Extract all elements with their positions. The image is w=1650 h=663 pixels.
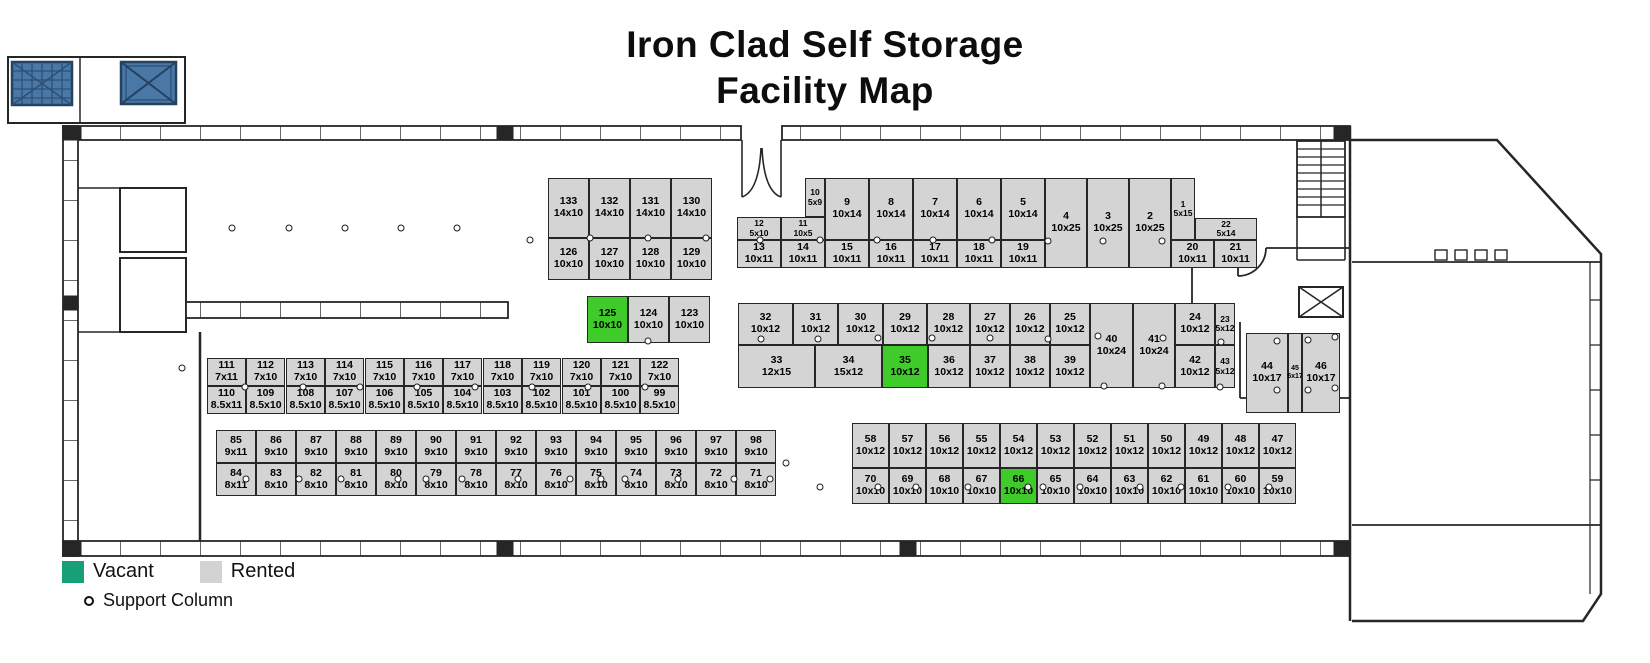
unit-size: 10x11 <box>921 254 950 266</box>
unit-22[interactable]: 225x14 <box>1195 218 1257 240</box>
unit-number: 89 <box>390 435 402 447</box>
unit-size: 5x9 <box>808 198 822 207</box>
unit-size: 5x12 <box>1216 324 1235 333</box>
support-column-dot <box>757 237 764 244</box>
unit-size: 10x11 <box>1178 254 1207 266</box>
unit-46[interactable]: 4610x17 <box>1302 333 1340 413</box>
support-column-dot <box>675 476 682 483</box>
unit-69[interactable]: 6910x10 <box>889 468 926 504</box>
unit-128[interactable]: 12810x10 <box>630 238 671 280</box>
support-column-dot <box>179 365 186 372</box>
unit-size: 8.5x10 <box>604 400 636 412</box>
support-column-dot <box>414 384 421 391</box>
unit-size: 10x25 <box>1093 223 1122 235</box>
unit-55[interactable]: 5510x12 <box>963 423 1000 468</box>
unit-number: 91 <box>470 435 482 447</box>
unit-37[interactable]: 3710x12 <box>970 345 1010 388</box>
unit-115[interactable]: 1157x10 <box>365 358 404 386</box>
unit-20[interactable]: 2010x11 <box>1171 240 1214 268</box>
unit-44[interactable]: 4410x17 <box>1246 333 1288 413</box>
unit-size: 10x10 <box>593 320 622 332</box>
support-column-dot <box>987 335 994 342</box>
support-column-dot <box>1332 334 1339 341</box>
unit-size: 8x10 <box>704 480 727 492</box>
unit-25[interactable]: 2510x12 <box>1050 303 1090 345</box>
unit-size: 8x10 <box>464 480 487 492</box>
unit-52[interactable]: 5210x12 <box>1074 423 1111 468</box>
unit-57[interactable]: 5710x12 <box>889 423 926 468</box>
unit-size: 9x10 <box>664 447 687 459</box>
unit-size: 10x24 <box>1139 346 1168 358</box>
unit-83[interactable]: 838x10 <box>256 463 296 496</box>
unit-number: 123 <box>681 308 699 320</box>
unit-size: 10x10 <box>634 320 663 332</box>
unit-118[interactable]: 1187x10 <box>483 358 522 386</box>
unit-number: 85 <box>230 435 242 447</box>
unit-41[interactable]: 4110x24 <box>1133 303 1175 388</box>
unit-8[interactable]: 810x14 <box>869 178 913 240</box>
support-column-dot <box>357 384 364 391</box>
unit-122[interactable]: 1227x10 <box>640 358 679 386</box>
support-column-dot <box>1332 385 1339 392</box>
unit-number: 47 <box>1272 434 1284 446</box>
vacant-label: Vacant <box>93 560 154 583</box>
unit-6[interactable]: 610x14 <box>957 178 1001 240</box>
interior-partition <box>186 302 508 318</box>
support-column-dot <box>817 484 824 491</box>
unit-size: 10x12 <box>1078 446 1107 458</box>
unit-size: 7x10 <box>254 372 277 384</box>
unit-size: 9x10 <box>744 447 767 459</box>
unit-size: 10x12 <box>1015 324 1044 336</box>
unit-5[interactable]: 510x14 <box>1001 178 1045 240</box>
unit-size: 7x10 <box>294 372 317 384</box>
unit-number: 35 <box>899 355 911 367</box>
unit-109[interactable]: 1098.5x10 <box>246 386 285 414</box>
unit-size: 8.5x10 <box>446 400 478 412</box>
unit-size: 10x12 <box>801 324 830 336</box>
unit-102[interactable]: 1028.5x10 <box>522 386 561 414</box>
support-column-dot <box>1178 484 1185 491</box>
unit-112[interactable]: 1127x10 <box>246 358 285 386</box>
unit-88[interactable]: 889x10 <box>336 430 376 463</box>
unit-size: 10x14 <box>876 209 905 221</box>
unit-size: 9x10 <box>624 447 647 459</box>
unit-43[interactable]: 435x12 <box>1215 345 1235 388</box>
support-column-dot <box>587 235 594 242</box>
unit-number: 36 <box>943 355 955 367</box>
unit-size: 14x10 <box>677 208 706 220</box>
unit-21[interactable]: 2110x11 <box>1214 240 1257 268</box>
unit-size: 10x12 <box>1115 446 1144 458</box>
unit-size: 9x10 <box>384 447 407 459</box>
unit-90[interactable]: 909x10 <box>416 430 456 463</box>
unit-size: 10x17 <box>1252 373 1281 385</box>
unit-size: 10x12 <box>1226 446 1255 458</box>
support-column-dot <box>342 225 349 232</box>
legend: Vacant Rented Support Column <box>62 560 295 611</box>
unit-size: 7x10 <box>609 372 632 384</box>
interior-rooms <box>78 188 186 332</box>
unit-92[interactable]: 929x10 <box>496 430 536 463</box>
unit-size: 10x12 <box>1004 446 1033 458</box>
unit-39[interactable]: 3910x12 <box>1050 345 1090 388</box>
unit-size: 10x17 <box>1306 373 1335 385</box>
unit-size: 10x12 <box>1263 446 1292 458</box>
unit-size: 8.5x10 <box>289 400 321 412</box>
unit-42[interactable]: 4210x12 <box>1175 345 1215 388</box>
support-column-dot <box>515 476 522 483</box>
unit-size: 10x11 <box>1221 254 1250 266</box>
unit-size: 10x14 <box>964 209 993 221</box>
unit-123[interactable]: 12310x10 <box>669 296 710 343</box>
unit-108[interactable]: 1088.5x10 <box>286 386 325 414</box>
support-column-dot <box>703 235 710 242</box>
unit-number: 84 <box>230 468 242 480</box>
unit-132[interactable]: 13214x10 <box>589 178 630 238</box>
support-column-dot <box>1217 384 1224 391</box>
support-column-dot <box>1100 238 1107 245</box>
unit-13[interactable]: 1310x11 <box>737 240 781 268</box>
support-column-dot <box>645 338 652 345</box>
unit-size: 9x10 <box>344 447 367 459</box>
unit-111[interactable]: 1117x11 <box>207 358 246 386</box>
unit-size: 7x10 <box>648 372 671 384</box>
unit-3[interactable]: 310x25 <box>1087 178 1129 268</box>
support-column-dot <box>296 476 303 483</box>
unit-size: 10x10 <box>554 259 583 271</box>
support-column-dot <box>527 237 534 244</box>
unit-34[interactable]: 3415x12 <box>815 345 882 388</box>
unit-70[interactable]: 7010x10 <box>852 468 889 504</box>
support-column-dot <box>1218 339 1225 346</box>
unit-number: 79 <box>430 468 442 480</box>
unit-7[interactable]: 710x14 <box>913 178 957 240</box>
support-column-dot <box>459 476 466 483</box>
unit-size: 9x10 <box>264 447 287 459</box>
unit-87[interactable]: 879x10 <box>296 430 336 463</box>
unit-number: 42 <box>1189 355 1201 367</box>
support-column-dot <box>454 225 461 232</box>
unit-120[interactable]: 1207x10 <box>562 358 601 386</box>
unit-4[interactable]: 410x25 <box>1045 178 1087 268</box>
support-column-dot <box>642 384 649 391</box>
unit-40[interactable]: 4010x24 <box>1090 303 1133 388</box>
unit-size: 8x10 <box>304 480 327 492</box>
unit-93[interactable]: 939x10 <box>536 430 576 463</box>
unit-121[interactable]: 1217x10 <box>601 358 640 386</box>
support-column-dot <box>817 237 824 244</box>
unit-33[interactable]: 3312x15 <box>738 345 815 388</box>
unit-49[interactable]: 4910x12 <box>1185 423 1222 468</box>
support-column-dot <box>875 335 882 342</box>
unit-number: 76 <box>550 468 562 480</box>
unit-size: 8.5x10 <box>407 400 439 412</box>
unit-19[interactable]: 1910x11 <box>1001 240 1045 268</box>
unit-size: 10x12 <box>1041 446 1070 458</box>
unit-number: 83 <box>270 468 282 480</box>
unit-97[interactable]: 979x10 <box>696 430 736 463</box>
unit-100[interactable]: 1008.5x10 <box>601 386 640 414</box>
unit-95[interactable]: 959x10 <box>616 430 656 463</box>
unit-number: 78 <box>470 468 482 480</box>
unit-size: 9x10 <box>584 447 607 459</box>
unit-24[interactable]: 2410x12 <box>1175 303 1215 345</box>
unit-number: 55 <box>976 434 988 446</box>
unit-size: 10x10 <box>675 320 704 332</box>
unit-number: 90 <box>430 435 442 447</box>
support-column-dot <box>242 384 249 391</box>
unit-119[interactable]: 1197x10 <box>522 358 561 386</box>
unit-number: 74 <box>630 468 642 480</box>
unit-size: 10x11 <box>877 254 906 266</box>
unit-size: 10x5 <box>794 229 813 238</box>
support-column-dot <box>423 476 430 483</box>
unit-35[interactable]: 3510x12 <box>882 345 928 388</box>
unit-91[interactable]: 919x10 <box>456 430 496 463</box>
support-column-dot <box>930 237 937 244</box>
unit-103[interactable]: 1038.5x10 <box>483 386 522 414</box>
unit-number: 56 <box>939 434 951 446</box>
unit-size: 7x10 <box>570 372 593 384</box>
support-column-dot <box>300 384 307 391</box>
unit-size: 7x10 <box>373 372 396 384</box>
unit-number: 34 <box>843 355 855 367</box>
unit-number: 41 <box>1148 334 1160 346</box>
unit-9[interactable]: 910x14 <box>825 178 869 240</box>
unit-number: 81 <box>350 468 362 480</box>
unit-117[interactable]: 1177x10 <box>443 358 482 386</box>
unit-size: 9x10 <box>504 447 527 459</box>
unit-61[interactable]: 6110x10 <box>1185 468 1222 504</box>
unit-10[interactable]: 105x9 <box>805 178 825 217</box>
unit-number: 86 <box>270 435 282 447</box>
unit-54[interactable]: 5410x12 <box>1000 423 1037 468</box>
unit-size: 10x14 <box>832 209 861 221</box>
unit-size: 10x12 <box>934 324 963 336</box>
unit-113[interactable]: 1137x10 <box>286 358 325 386</box>
elevator-shaft-icon <box>1299 287 1343 317</box>
unit-86[interactable]: 869x10 <box>256 430 296 463</box>
unit-size: 10x12 <box>890 324 919 336</box>
unit-96[interactable]: 969x10 <box>656 430 696 463</box>
unit-number: 71 <box>750 468 762 480</box>
unit-16[interactable]: 1610x11 <box>869 240 913 268</box>
unit-94[interactable]: 949x10 <box>576 430 616 463</box>
unit-size: 14x10 <box>554 208 583 220</box>
unit-50[interactable]: 5010x12 <box>1148 423 1185 468</box>
support-column-dot <box>783 460 790 467</box>
unit-size: 8x10 <box>624 480 647 492</box>
unit-size: 8.5x10 <box>565 400 597 412</box>
unit-15[interactable]: 1510x11 <box>825 240 869 268</box>
unit-number: 93 <box>550 435 562 447</box>
unit-size: 5x17 <box>1287 373 1303 381</box>
support-column-icon <box>84 596 94 606</box>
unit-105[interactable]: 1058.5x10 <box>404 386 443 414</box>
unit-number: 33 <box>771 355 783 367</box>
unit-size: 10x11 <box>965 254 994 266</box>
support-column-dot <box>622 476 629 483</box>
support-column-dot <box>1159 383 1166 390</box>
unit-85[interactable]: 859x11 <box>216 430 256 463</box>
unit-51[interactable]: 5110x12 <box>1111 423 1148 468</box>
unit-size: 10x12 <box>751 324 780 336</box>
support-column-dot <box>815 336 822 343</box>
unit-number: 82 <box>310 468 322 480</box>
support-column-dot <box>398 225 405 232</box>
unit-68[interactable]: 6810x10 <box>926 468 963 504</box>
unit-size: 8.5x10 <box>328 400 360 412</box>
unit-size: 10x12 <box>1189 446 1218 458</box>
unit-size: 10x10 <box>677 259 706 271</box>
unit-number: 124 <box>640 308 658 320</box>
unit-size: 10x10 <box>595 259 624 271</box>
unit-129[interactable]: 12910x10 <box>671 238 712 280</box>
unit-size: 10x12 <box>975 367 1004 379</box>
title-line1: Iron Clad Self Storage <box>0 22 1650 68</box>
unit-size: 10x11 <box>789 254 818 266</box>
unit-size: 10x12 <box>1055 324 1084 336</box>
unit-size: 14x10 <box>595 208 624 220</box>
unit-114[interactable]: 1147x10 <box>325 358 364 386</box>
support-column-dot <box>1101 383 1108 390</box>
support-column-dot <box>229 225 236 232</box>
unit-131[interactable]: 13114x10 <box>630 178 671 238</box>
unit-size: 7x10 <box>451 372 474 384</box>
unit-133[interactable]: 13314x10 <box>548 178 589 238</box>
unit-32[interactable]: 3210x12 <box>738 303 793 345</box>
unit-124[interactable]: 12410x10 <box>628 296 669 343</box>
support-column-dot <box>1305 337 1312 344</box>
support-column-dot <box>567 476 574 483</box>
support-column-dot <box>1274 338 1281 345</box>
support-column-label: Support Column <box>103 590 233 611</box>
unit-75[interactable]: 758x10 <box>576 463 616 496</box>
unit-size: 10x14 <box>920 209 949 221</box>
unit-size: 5x15 <box>1174 209 1193 218</box>
unit-47[interactable]: 4710x12 <box>1259 423 1296 468</box>
unit-17[interactable]: 1710x11 <box>913 240 957 268</box>
unit-125[interactable]: 12510x10 <box>587 296 628 343</box>
unit-size: 10x14 <box>1008 209 1037 221</box>
unit-36[interactable]: 3610x12 <box>928 345 970 388</box>
unit-size: 10x12 <box>890 367 919 379</box>
unit-size: 5x14 <box>1217 229 1236 238</box>
unit-size: 8.5x11 <box>211 400 243 412</box>
support-column-dot <box>529 384 536 391</box>
unit-number: 88 <box>350 435 362 447</box>
unit-98[interactable]: 989x10 <box>736 430 776 463</box>
unit-number: 95 <box>630 435 642 447</box>
unit-size: 9x10 <box>464 447 487 459</box>
unit-size: 8.5x10 <box>486 400 518 412</box>
unit-number: 94 <box>590 435 602 447</box>
vacant-swatch <box>62 561 84 583</box>
unit-number: 98 <box>750 435 762 447</box>
right-wing <box>1350 126 1601 621</box>
rented-label: Rented <box>231 560 296 583</box>
unit-size: 10x12 <box>856 446 885 458</box>
support-column-dot <box>874 237 881 244</box>
unit-84[interactable]: 848x11 <box>216 463 256 496</box>
unit-1[interactable]: 15x15 <box>1171 178 1195 240</box>
unit-38[interactable]: 3810x12 <box>1010 345 1050 388</box>
unit-number: 53 <box>1050 434 1062 446</box>
unit-2[interactable]: 210x25 <box>1129 178 1171 268</box>
unit-101[interactable]: 1018.5x10 <box>562 386 601 414</box>
unit-size: 7x10 <box>412 372 435 384</box>
unit-size: 7x10 <box>530 372 553 384</box>
unit-size: 9x10 <box>424 447 447 459</box>
support-column-dot <box>1077 484 1084 491</box>
unit-size: 10x10 <box>1189 486 1218 498</box>
unit-size: 10x11 <box>745 254 774 266</box>
unit-size: 8x10 <box>344 480 367 492</box>
support-column-dot <box>758 336 765 343</box>
unit-size: 10x12 <box>934 367 963 379</box>
unit-size: 10x25 <box>1051 223 1080 235</box>
support-column-dot <box>1160 335 1167 342</box>
support-column-dot <box>1095 333 1102 340</box>
unit-size: 7x10 <box>491 372 514 384</box>
support-column-dot <box>731 476 738 483</box>
unit-size: 9x10 <box>704 447 727 459</box>
unit-size: 8x10 <box>544 480 567 492</box>
unit-size: 7x11 <box>215 372 238 384</box>
support-column-dot <box>1274 387 1281 394</box>
support-column-dot <box>1045 336 1052 343</box>
unit-130[interactable]: 13014x10 <box>671 178 712 238</box>
unit-56[interactable]: 5610x12 <box>926 423 963 468</box>
unit-29[interactable]: 2910x12 <box>883 303 927 345</box>
unit-110[interactable]: 1108.5x11 <box>207 386 246 414</box>
support-column-dot <box>645 235 652 242</box>
unit-116[interactable]: 1167x10 <box>404 358 443 386</box>
unit-126[interactable]: 12610x10 <box>548 238 589 280</box>
unit-number: 37 <box>984 355 996 367</box>
support-column-dot <box>598 476 605 483</box>
unit-size: 10x12 <box>1180 367 1209 379</box>
unit-89[interactable]: 899x10 <box>376 430 416 463</box>
unit-45[interactable]: 455x17 <box>1288 333 1302 413</box>
unit-number: 87 <box>310 435 322 447</box>
unit-number: 40 <box>1106 334 1118 346</box>
unit-53[interactable]: 5310x12 <box>1037 423 1074 468</box>
support-column-dot <box>875 484 882 491</box>
unit-number: 97 <box>710 435 722 447</box>
unit-number: 39 <box>1064 355 1076 367</box>
unit-size: 9x10 <box>544 447 567 459</box>
unit-size: 8.5x10 <box>643 400 675 412</box>
unit-number: 57 <box>902 434 914 446</box>
unit-size: 8.5x10 <box>525 400 557 412</box>
unit-106[interactable]: 1068.5x10 <box>365 386 404 414</box>
unit-18[interactable]: 1810x11 <box>957 240 1001 268</box>
unit-number: 50 <box>1161 434 1173 446</box>
unit-number: 49 <box>1198 434 1210 446</box>
unit-14[interactable]: 1410x11 <box>781 240 825 268</box>
unit-58[interactable]: 5810x12 <box>852 423 889 468</box>
unit-number: 92 <box>510 435 522 447</box>
unit-48[interactable]: 4810x12 <box>1222 423 1259 468</box>
support-column-dot <box>243 476 250 483</box>
unit-size: 9x10 <box>304 447 327 459</box>
unit-size: 8x10 <box>264 480 287 492</box>
support-column-dot <box>395 476 402 483</box>
unit-127[interactable]: 12710x10 <box>589 238 630 280</box>
unit-size: 10x12 <box>1180 324 1209 336</box>
